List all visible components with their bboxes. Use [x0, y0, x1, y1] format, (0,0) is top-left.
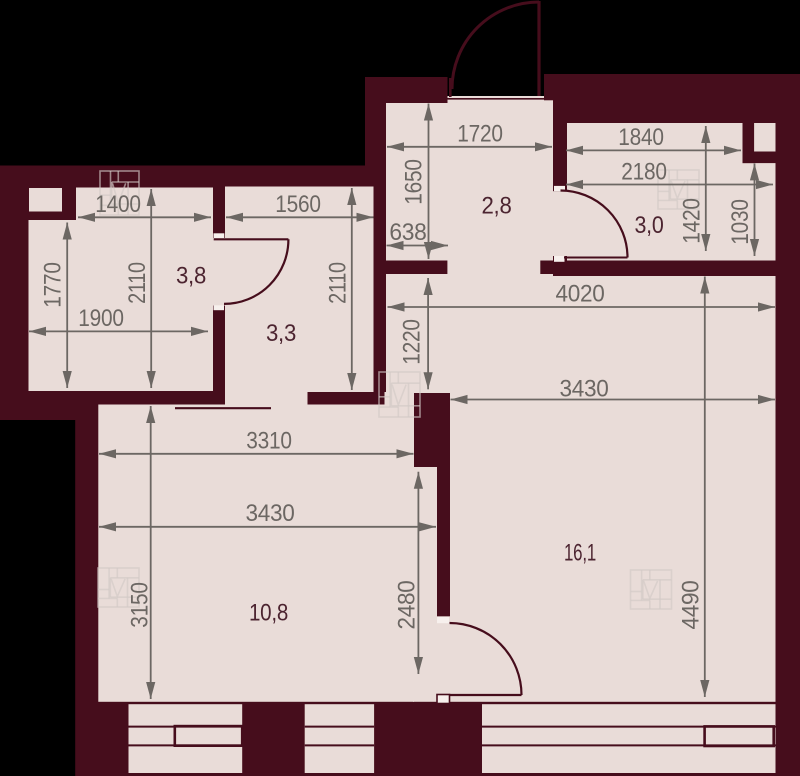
svg-text:1400: 1400: [95, 191, 140, 218]
svg-text:1720: 1720: [457, 120, 502, 147]
svg-text:4490: 4490: [677, 580, 704, 629]
svg-text:2110: 2110: [124, 262, 151, 304]
svg-text:2,8: 2,8: [482, 193, 512, 220]
svg-text:1770: 1770: [39, 262, 66, 307]
svg-text:1220: 1220: [399, 319, 426, 364]
svg-text:3310: 3310: [246, 427, 291, 454]
svg-text:3,0: 3,0: [635, 212, 664, 239]
svg-text:2180: 2180: [621, 159, 666, 186]
svg-text:10,8: 10,8: [249, 600, 288, 627]
svg-text:3,3: 3,3: [266, 320, 296, 347]
svg-text:3,8: 3,8: [176, 263, 206, 290]
svg-text:3430: 3430: [245, 500, 294, 527]
svg-text:1560: 1560: [275, 191, 320, 218]
svg-text:1420: 1420: [678, 198, 705, 243]
svg-text:3150: 3150: [126, 582, 153, 627]
svg-text:2480: 2480: [393, 580, 420, 629]
svg-text:4020: 4020: [555, 281, 604, 308]
svg-text:1650: 1650: [400, 159, 427, 204]
svg-text:638: 638: [389, 219, 426, 246]
svg-text:1900: 1900: [78, 305, 123, 332]
svg-text:1840: 1840: [618, 124, 663, 151]
svg-text:2110: 2110: [325, 262, 352, 304]
svg-text:16,1: 16,1: [564, 540, 596, 567]
svg-text:3430: 3430: [559, 376, 608, 403]
svg-text:1030: 1030: [727, 199, 754, 244]
